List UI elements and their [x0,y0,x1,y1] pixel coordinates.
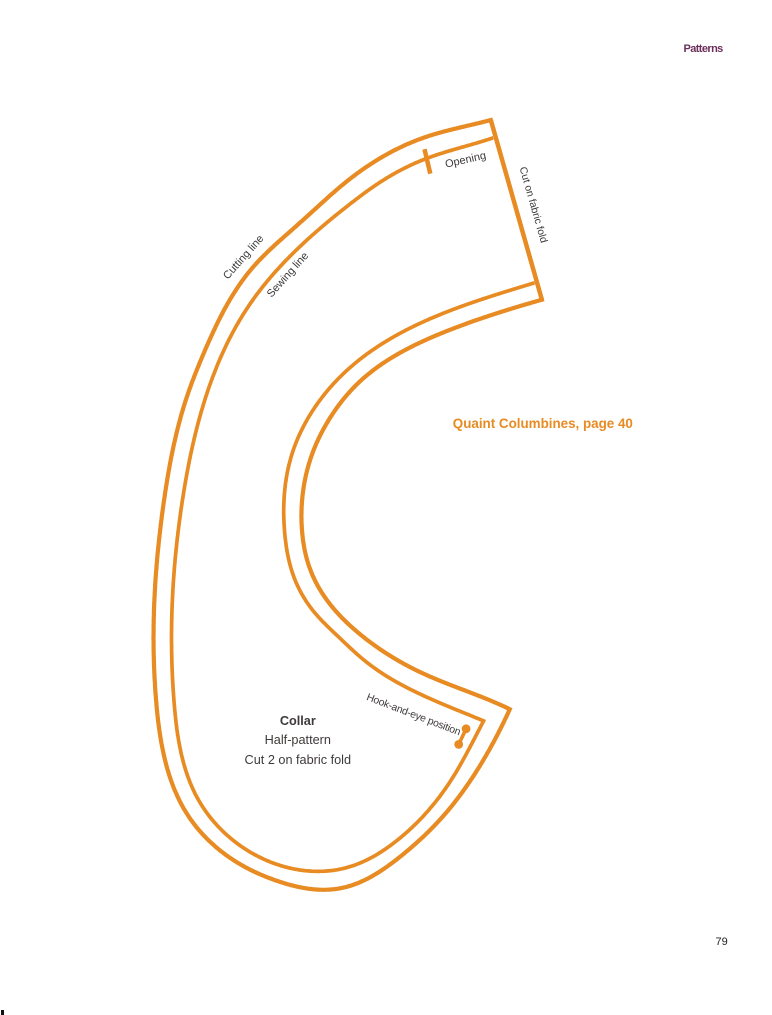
svg-text:Opening: Opening [444,150,487,171]
